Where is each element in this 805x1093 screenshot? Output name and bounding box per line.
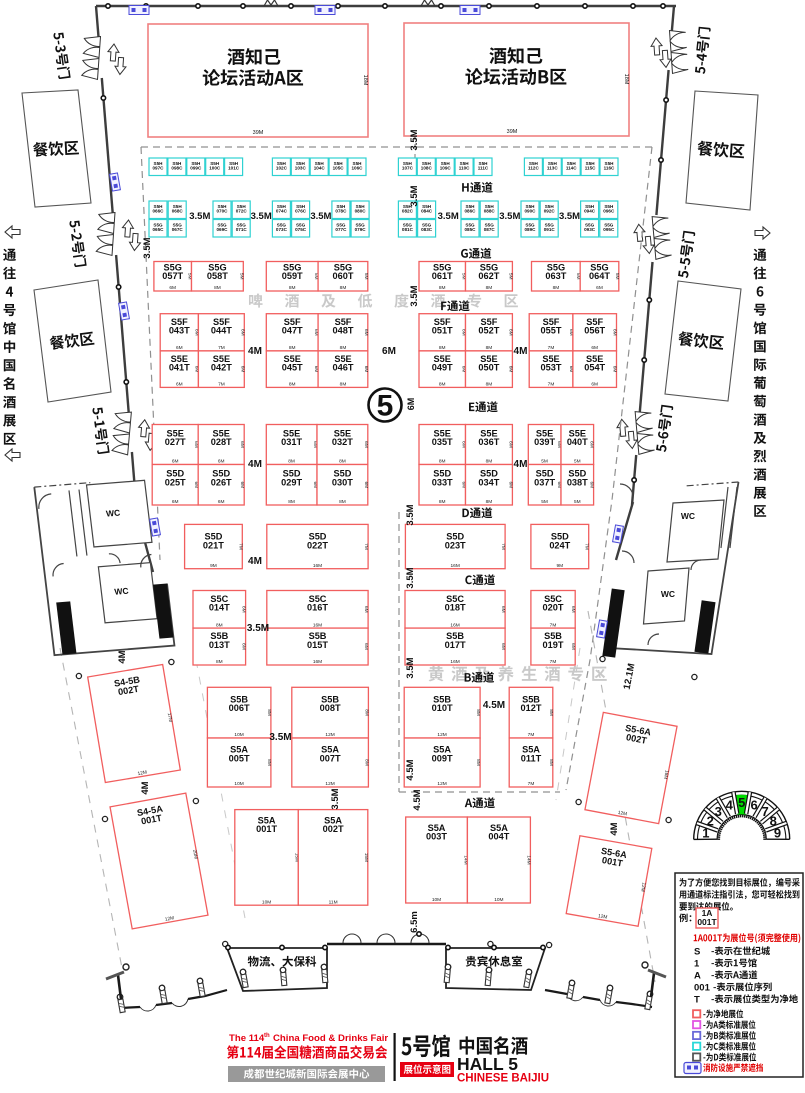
svg-text:S5F047T: S5F047T <box>282 317 303 336</box>
svg-text:S5D022T: S5D022T <box>307 532 328 551</box>
svg-text:6M: 6M <box>570 643 576 650</box>
svg-text:3: 3 <box>715 804 722 819</box>
svg-text:5M: 5M <box>574 499 581 505</box>
svg-text:1: 1 <box>694 959 700 970</box>
svg-text:S5F043T: S5F043T <box>169 317 190 336</box>
svg-text:3.5M: 3.5M <box>189 211 210 222</box>
svg-text:CHINESE BAIJIU: CHINESE BAIJIU <box>457 1073 549 1085</box>
svg-text:S5H078C: S5H078C <box>335 204 347 214</box>
svg-text:3.5M: 3.5M <box>405 567 416 588</box>
svg-text:S5E045T: S5E045T <box>282 354 303 373</box>
svg-text:S5A009T: S5A009T <box>432 745 453 764</box>
svg-text:S5G069C: S5G069C <box>217 223 229 233</box>
svg-text:S5G057T: S5G057T <box>162 262 183 281</box>
svg-text:3.5M: 3.5M <box>499 211 520 222</box>
svg-text:10M: 10M <box>262 899 271 905</box>
svg-text:5M: 5M <box>614 273 620 280</box>
svg-text:18M: 18M <box>362 75 368 86</box>
svg-text:7M: 7M <box>528 781 535 787</box>
svg-text:S5G087C: S5G087C <box>484 223 496 233</box>
svg-text:S5H099C: S5H099C <box>190 161 202 171</box>
svg-text:S5H116C: S5H116C <box>604 161 615 171</box>
svg-text:S5G081C: S5G081C <box>402 223 414 233</box>
svg-text:3.5M: 3.5M <box>142 237 153 258</box>
svg-text:S5H111C: S5H111C <box>478 161 489 171</box>
svg-text:S5C018T: S5C018T <box>445 594 466 613</box>
svg-text:S5G073C: S5G073C <box>276 223 288 233</box>
svg-text:S5H113C: S5H113C <box>547 161 558 171</box>
svg-text:S5H076C: S5H076C <box>295 204 307 214</box>
svg-text:6.5m: 6.5m <box>409 911 420 933</box>
svg-text:10M: 10M <box>234 781 243 787</box>
svg-text:S5H114C: S5H114C <box>566 161 577 171</box>
svg-text:S5H107C: S5H107C <box>402 161 414 171</box>
svg-text:S5H070C: S5H070C <box>217 204 229 214</box>
svg-text:S5H102C: S5H102C <box>276 161 288 171</box>
svg-text:8M: 8M <box>548 759 554 766</box>
svg-text:S5H115C: S5H115C <box>585 161 596 171</box>
svg-text:S5D025T: S5D025T <box>165 469 186 488</box>
svg-text:S5E042T: S5E042T <box>211 354 232 373</box>
svg-text:A: A <box>694 971 701 982</box>
svg-text:The 114: The 114 <box>229 1033 265 1044</box>
svg-text:5M: 5M <box>541 459 548 465</box>
svg-text:S5H080C: S5H080C <box>355 204 367 214</box>
svg-text:8M: 8M <box>363 759 369 766</box>
svg-text:5: 5 <box>738 795 745 810</box>
svg-text:S5E031T: S5E031T <box>281 429 302 448</box>
svg-text:6M: 6M <box>612 366 618 373</box>
svg-text:S5H094C: S5H094C <box>584 204 596 214</box>
svg-text:S5D030T: S5D030T <box>332 469 353 488</box>
svg-text:S5G064T: S5G064T <box>589 262 610 281</box>
svg-text:12M: 12M <box>437 732 446 738</box>
svg-text:16M: 16M <box>313 659 322 665</box>
svg-text:S5C016T: S5C016T <box>307 594 328 613</box>
svg-text:5M: 5M <box>574 459 581 465</box>
svg-text:th: th <box>264 1033 270 1039</box>
svg-text:S5H096C: S5H096C <box>603 204 615 214</box>
svg-text:S5D023T: S5D023T <box>445 532 466 551</box>
svg-text:7M: 7M <box>584 543 590 550</box>
svg-text:S5E053T: S5E053T <box>541 354 562 373</box>
svg-text:S5G059T: S5G059T <box>282 262 303 281</box>
svg-text:S5H066C: S5H066C <box>153 204 165 214</box>
svg-text:001: 001 <box>694 983 711 994</box>
svg-text:16M: 16M <box>451 563 460 569</box>
svg-text:8M: 8M <box>486 345 493 351</box>
svg-text:3.5M: 3.5M <box>330 788 341 809</box>
svg-text:9M: 9M <box>556 563 563 569</box>
svg-text:S5E040T: S5E040T <box>567 429 588 448</box>
svg-text:6M: 6M <box>500 643 506 650</box>
svg-text:S5G095C: S5G095C <box>603 223 615 233</box>
svg-text:8M: 8M <box>486 459 493 465</box>
svg-text:S5G075C: S5G075C <box>295 223 307 233</box>
svg-text:S5A005T: S5A005T <box>229 745 250 764</box>
svg-text:6M: 6M <box>241 606 247 613</box>
svg-text:S5B010T: S5B010T <box>432 695 453 714</box>
svg-text:3.5M: 3.5M <box>405 504 416 525</box>
svg-text:S5E049T: S5E049T <box>432 354 453 373</box>
svg-text:S5A001T: S5A001T <box>256 815 277 834</box>
svg-text:4M: 4M <box>514 459 528 470</box>
svg-text:39M: 39M <box>507 129 518 135</box>
svg-text:S5D033T: S5D033T <box>432 469 453 488</box>
svg-text:S5D021T: S5D021T <box>203 532 224 551</box>
svg-text:S5D037T: S5D037T <box>534 469 555 488</box>
svg-text:5M: 5M <box>238 273 244 280</box>
svg-text:S5H106C: S5H106C <box>352 161 364 171</box>
svg-text:7M: 7M <box>528 732 535 738</box>
svg-text:6M: 6M <box>172 459 179 465</box>
svg-text:S5G067C: S5G067C <box>172 223 184 233</box>
svg-text:8M: 8M <box>439 499 446 505</box>
svg-text:6M: 6M <box>241 643 247 650</box>
svg-text:15M: 15M <box>363 853 369 862</box>
svg-text:S5G062T: S5G062T <box>478 262 499 281</box>
svg-text:S5H084C: S5H084C <box>421 204 433 214</box>
svg-text:S5A003T: S5A003T <box>426 823 447 842</box>
svg-text:S5H108C: S5H108C <box>421 161 433 171</box>
svg-text:3.5M: 3.5M <box>409 129 420 150</box>
svg-text:6M: 6M <box>176 345 183 351</box>
svg-text:4.5M: 4.5M <box>483 700 505 711</box>
svg-text:S5E028T: S5E028T <box>211 429 232 448</box>
svg-text:8M: 8M <box>266 709 272 716</box>
svg-text:S5F044T: S5F044T <box>211 317 232 336</box>
svg-text:8M: 8M <box>339 459 346 465</box>
svg-text:S5D026T: S5D026T <box>211 469 232 488</box>
svg-text:S5G077C: S5G077C <box>335 223 347 233</box>
svg-text:3.5M: 3.5M <box>310 211 331 222</box>
svg-text:10M: 10M <box>494 897 503 903</box>
svg-text:7M: 7M <box>550 659 557 665</box>
svg-text:2: 2 <box>707 814 714 829</box>
svg-text:3.5M: 3.5M <box>269 732 291 743</box>
svg-text:4: 4 <box>726 797 734 812</box>
svg-text:S5C020T: S5C020T <box>543 594 564 613</box>
svg-text:7M: 7M <box>548 345 555 351</box>
svg-text:6M: 6M <box>382 346 396 357</box>
svg-text:18M: 18M <box>623 74 629 85</box>
svg-text:S5H104C: S5H104C <box>314 161 326 171</box>
svg-text:S5G091C: S5G091C <box>544 223 556 233</box>
svg-text:6M: 6M <box>239 366 245 373</box>
svg-text:HALL 5: HALL 5 <box>457 1054 518 1074</box>
svg-text:S5F048T: S5F048T <box>333 317 354 336</box>
svg-text:5: 5 <box>377 390 394 423</box>
svg-text:S5E054T: S5E054T <box>584 354 605 373</box>
svg-text:S5A011T: S5A011T <box>521 745 542 764</box>
svg-text:8M: 8M <box>266 759 272 766</box>
svg-text:WC: WC <box>681 511 695 521</box>
svg-text:T: T <box>694 995 700 1006</box>
svg-text:8M: 8M <box>486 285 493 291</box>
svg-text:S5H100C: S5H100C <box>209 161 221 171</box>
svg-text:S5H074C: S5H074C <box>276 204 288 214</box>
svg-text:S5C014T: S5C014T <box>209 594 230 613</box>
svg-text:S5G061T: S5G061T <box>432 262 453 281</box>
svg-text:S5H105C: S5H105C <box>333 161 345 171</box>
svg-text:8M: 8M <box>288 459 295 465</box>
svg-text:6M: 6M <box>363 329 369 336</box>
svg-text:5M: 5M <box>363 273 369 280</box>
svg-text:6M: 6M <box>363 606 369 613</box>
svg-text:6M: 6M <box>591 382 598 388</box>
svg-text:S5A002T: S5A002T <box>323 815 344 834</box>
svg-text:S5E035T: S5E035T <box>432 429 453 448</box>
svg-text:001T: 001T <box>697 917 717 927</box>
svg-text:S5F051T: S5F051T <box>432 317 453 336</box>
svg-text:S5H098C: S5H098C <box>171 161 183 171</box>
svg-text:16M: 16M <box>313 622 322 628</box>
svg-text:S5E041T: S5E041T <box>169 354 190 373</box>
svg-text:S5D024T: S5D024T <box>549 532 570 551</box>
svg-text:S5E032T: S5E032T <box>332 429 353 448</box>
svg-text:7M: 7M <box>237 543 243 550</box>
svg-text:6M: 6M <box>176 382 183 388</box>
svg-text:S5G093C: S5G093C <box>584 223 596 233</box>
svg-text:3.5M: 3.5M <box>409 285 420 306</box>
svg-text:S5G085C: S5G085C <box>465 223 477 233</box>
svg-text:4M: 4M <box>140 781 151 794</box>
svg-text:S5D038T: S5D038T <box>567 469 588 488</box>
svg-text:4M: 4M <box>609 822 620 835</box>
svg-text:6M: 6M <box>589 441 595 448</box>
svg-text:6M: 6M <box>363 441 369 448</box>
svg-text:S: S <box>694 947 700 958</box>
svg-text:S5H109C: S5H109C <box>440 161 452 171</box>
svg-text:S5H068C: S5H068C <box>172 204 184 214</box>
svg-text:S5A004T: S5A004T <box>488 823 509 842</box>
svg-text:3.5M: 3.5M <box>409 185 420 206</box>
svg-text:S5H072C: S5H072C <box>236 204 248 214</box>
svg-text:WC: WC <box>661 589 675 599</box>
svg-text:S5D034T: S5D034T <box>478 469 499 488</box>
svg-text:S5B017T: S5B017T <box>445 631 466 650</box>
svg-text:6M: 6M <box>169 285 176 291</box>
svg-text:7: 7 <box>761 804 768 819</box>
svg-text:S5B008T: S5B008T <box>320 695 341 714</box>
svg-text:7M: 7M <box>218 345 225 351</box>
svg-text:8M: 8M <box>475 709 481 716</box>
svg-text:8M: 8M <box>439 459 446 465</box>
svg-text:4M: 4M <box>248 556 262 567</box>
svg-text:12M: 12M <box>325 732 334 738</box>
svg-text:S5B015T: S5B015T <box>307 631 328 650</box>
svg-text:14M: 14M <box>525 855 531 864</box>
svg-text:6: 6 <box>750 797 757 812</box>
svg-text:6M: 6M <box>218 499 225 505</box>
svg-text:S5A007T: S5A007T <box>320 745 341 764</box>
svg-text:WC: WC <box>114 586 129 597</box>
svg-text:8M: 8M <box>363 709 369 716</box>
svg-text:6M: 6M <box>172 499 179 505</box>
svg-text:S5G065C: S5G065C <box>153 223 165 233</box>
svg-text:6M: 6M <box>363 643 369 650</box>
svg-text:S5E039T: S5E039T <box>534 429 555 448</box>
svg-text:S5H092C: S5H092C <box>544 204 556 214</box>
svg-text:8M: 8M <box>548 709 554 716</box>
svg-text:S5H090C: S5H090C <box>525 204 537 214</box>
svg-text:8M: 8M <box>439 285 446 291</box>
svg-text:5M: 5M <box>541 499 548 505</box>
svg-text:6M: 6M <box>239 329 245 336</box>
svg-text:8M: 8M <box>340 345 347 351</box>
svg-text:6M: 6M <box>406 398 416 411</box>
svg-text:S5H112C: S5H112C <box>528 161 539 171</box>
svg-text:8M: 8M <box>289 382 296 388</box>
svg-text:S5G089C: S5G089C <box>525 223 537 233</box>
svg-text:8M: 8M <box>288 499 295 505</box>
svg-text:S5E050T: S5E050T <box>478 354 499 373</box>
svg-text:3.5M: 3.5M <box>559 211 580 222</box>
svg-text:S5E046T: S5E046T <box>333 354 354 373</box>
svg-text:China Food & Drinks Fair: China Food & Drinks Fair <box>273 1033 388 1044</box>
svg-text:8M: 8M <box>340 382 347 388</box>
svg-text:16M: 16M <box>450 659 459 665</box>
svg-text:S5H086C: S5H086C <box>465 204 477 214</box>
svg-text:S5H103C: S5H103C <box>295 161 307 171</box>
svg-text:16M: 16M <box>313 563 322 569</box>
svg-text:39M: 39M <box>253 130 264 136</box>
svg-text:4M: 4M <box>248 459 262 470</box>
svg-text:6M: 6M <box>363 481 369 488</box>
svg-text:S5B019T: S5B019T <box>543 631 564 650</box>
svg-text:12M: 12M <box>325 781 334 787</box>
svg-text:8M: 8M <box>486 499 493 505</box>
svg-text:S5E036T: S5E036T <box>478 429 499 448</box>
svg-text:6M: 6M <box>596 285 603 291</box>
svg-text:S5B012T: S5B012T <box>521 695 542 714</box>
svg-text:8M: 8M <box>486 382 493 388</box>
svg-text:6M: 6M <box>570 606 576 613</box>
svg-text:S5H088C: S5H088C <box>484 204 496 214</box>
svg-text:4M: 4M <box>117 650 128 663</box>
svg-text:6M: 6M <box>218 459 225 465</box>
svg-text:S5F055T: S5F055T <box>541 317 562 336</box>
svg-text:9: 9 <box>774 825 781 840</box>
svg-text:4M: 4M <box>248 346 262 357</box>
svg-text:6M: 6M <box>239 481 245 488</box>
svg-text:6M: 6M <box>507 366 513 373</box>
svg-text:6M: 6M <box>612 329 618 336</box>
svg-text:8M: 8M <box>216 622 223 628</box>
svg-text:8M: 8M <box>439 382 446 388</box>
svg-text:8M: 8M <box>340 285 347 291</box>
svg-text:S5G083C: S5G083C <box>421 223 433 233</box>
svg-text:7M: 7M <box>500 543 506 550</box>
svg-text:6M: 6M <box>239 441 245 448</box>
svg-text:4M: 4M <box>514 346 528 357</box>
svg-text:7M: 7M <box>218 382 225 388</box>
svg-text:S5F056T: S5F056T <box>584 317 605 336</box>
svg-text:9M: 9M <box>210 563 217 569</box>
svg-text:6M: 6M <box>589 481 595 488</box>
svg-text:8M: 8M <box>214 285 221 291</box>
svg-text:8M: 8M <box>339 499 346 505</box>
svg-text:3.5M: 3.5M <box>251 211 272 222</box>
svg-text:4.5M: 4.5M <box>412 789 423 810</box>
svg-text:3.5M: 3.5M <box>438 211 459 222</box>
svg-text:S5G063T: S5G063T <box>545 262 566 281</box>
svg-text:WC: WC <box>105 508 120 519</box>
svg-text:4.5M: 4.5M <box>405 759 416 780</box>
svg-text:8M: 8M <box>216 659 223 665</box>
svg-text:S5E027T: S5E027T <box>165 429 186 448</box>
svg-text:6M: 6M <box>500 606 506 613</box>
svg-text:8M: 8M <box>289 345 296 351</box>
svg-text:S5H101C: S5H101C <box>228 161 240 171</box>
svg-text:S5G060T: S5G060T <box>333 262 354 281</box>
svg-text:S5G058T: S5G058T <box>207 262 228 281</box>
svg-text:7M: 7M <box>363 543 369 550</box>
svg-text:8M: 8M <box>439 345 446 351</box>
svg-text:8M: 8M <box>289 285 296 291</box>
svg-text:S5G071C: S5G071C <box>236 223 248 233</box>
svg-text:3.5M: 3.5M <box>405 657 416 678</box>
svg-text:12M: 12M <box>437 781 446 787</box>
svg-text:10M: 10M <box>234 732 243 738</box>
svg-text:8M: 8M <box>553 285 560 291</box>
svg-text:S5B013T: S5B013T <box>209 631 230 650</box>
svg-text:16M: 16M <box>450 622 459 628</box>
svg-text:S5G079C: S5G079C <box>355 223 367 233</box>
svg-text:7M: 7M <box>548 382 555 388</box>
svg-text:10M: 10M <box>432 897 441 903</box>
svg-text:S5H097C: S5H097C <box>153 161 165 171</box>
svg-text:3.5M: 3.5M <box>247 623 269 634</box>
svg-text:6M: 6M <box>507 441 513 448</box>
svg-text:S5H110C: S5H110C <box>459 161 470 171</box>
svg-text:11M: 11M <box>329 899 338 905</box>
svg-text:S5F052T: S5F052T <box>478 317 499 336</box>
svg-text:8M: 8M <box>475 759 481 766</box>
svg-text:S5B006T: S5B006T <box>229 695 250 714</box>
svg-text:6M: 6M <box>591 345 598 351</box>
svg-text:6M: 6M <box>363 366 369 373</box>
svg-text:7M: 7M <box>550 622 557 628</box>
svg-text:S5D029T: S5D029T <box>281 469 302 488</box>
